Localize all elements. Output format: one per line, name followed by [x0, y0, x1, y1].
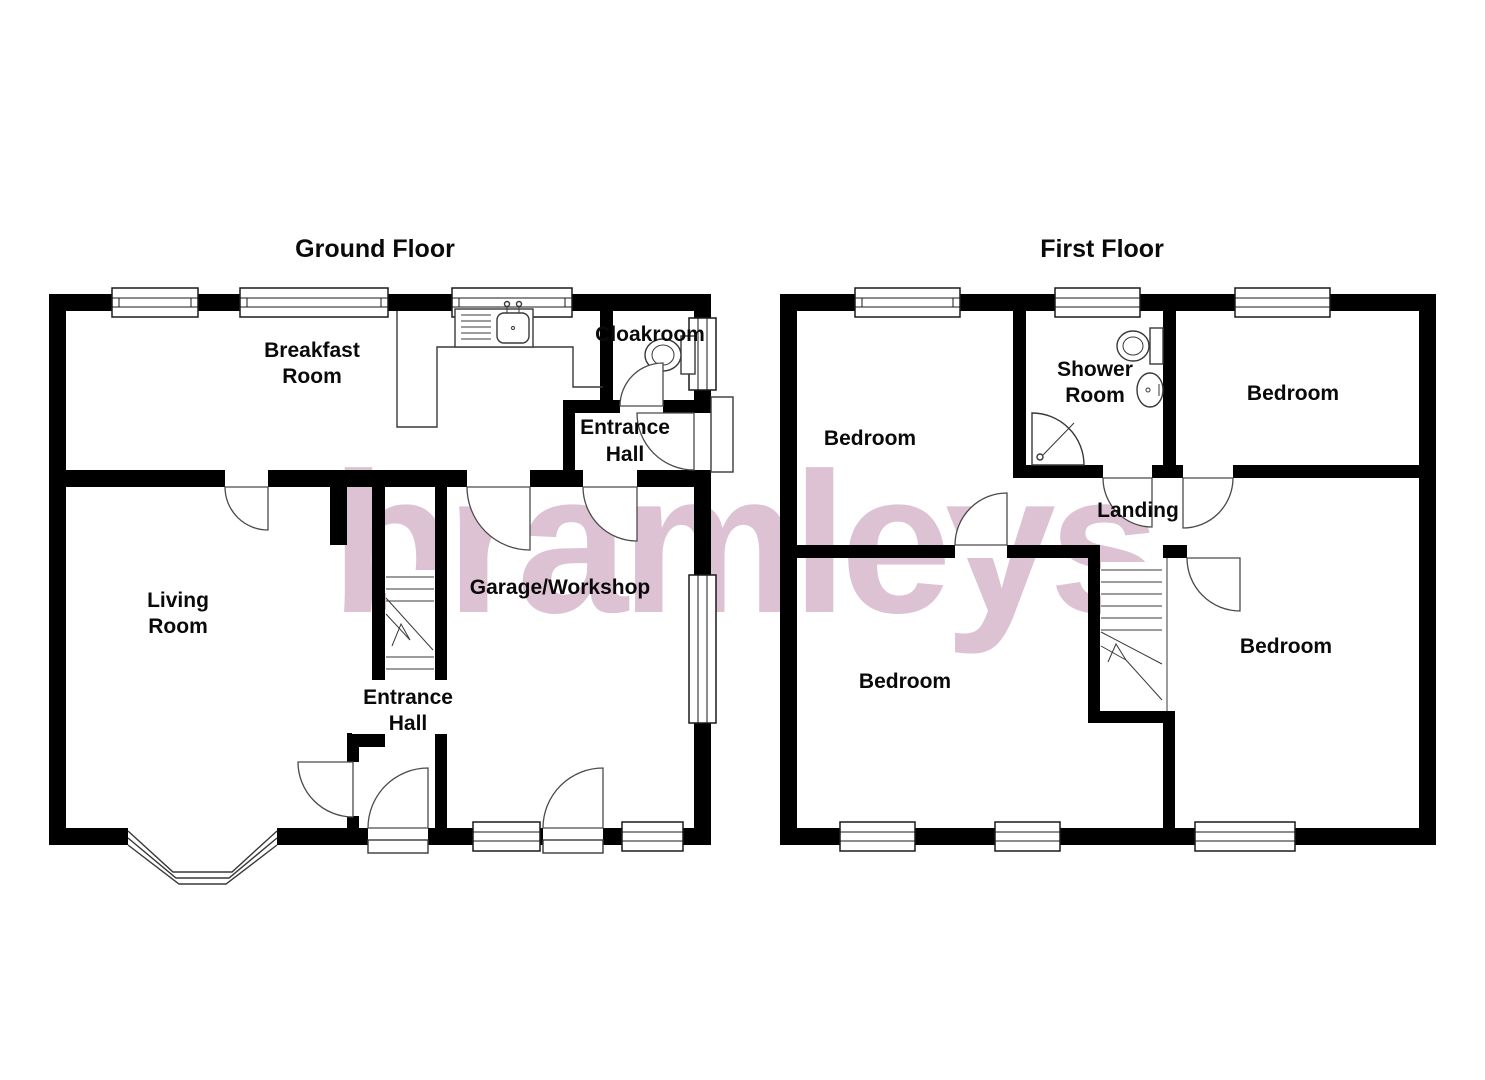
label-entrance-hall-lower-line2: Hall	[389, 712, 428, 735]
front-door-leaf	[711, 397, 733, 472]
label-garage-workshop: Garage/Workshop	[470, 576, 651, 599]
label-entrance-hall-lower-line1: Entrance	[363, 686, 453, 709]
back-door-leaf	[368, 840, 428, 853]
label-shower-room-line1: Shower	[1057, 358, 1133, 381]
label-living-room-line1: Living	[147, 589, 209, 612]
label-living-room-line2: Room	[148, 615, 208, 638]
label-entrance-hall-upper-line1: Entrance	[580, 416, 670, 439]
label-bedroom-bottom-right: Bedroom	[1240, 635, 1332, 658]
label-cloakroom: Cloakroom	[595, 323, 705, 346]
label-bedroom-top-right: Bedroom	[1247, 382, 1339, 405]
label-bedroom-bottom-left: Bedroom	[859, 670, 951, 693]
kitchen-sink	[455, 302, 533, 348]
window-bedroom-br	[1195, 822, 1295, 851]
window-breakfast-2	[240, 288, 388, 317]
label-bedroom-top-left: Bedroom	[824, 427, 916, 450]
window-garage-side	[689, 575, 716, 723]
window-shower-room	[1055, 288, 1140, 317]
stairs-ground-floor	[386, 570, 435, 682]
first-floor-title: First Floor	[1040, 235, 1164, 263]
window-garage-front-1	[473, 822, 540, 851]
window-breakfast-1	[112, 288, 198, 317]
window-bedroom-tl	[855, 288, 960, 317]
label-breakfast-room-line1: Breakfast	[264, 339, 360, 362]
window-bedroom-bl-1	[840, 822, 915, 851]
label-landing: Landing	[1097, 499, 1179, 522]
floorplan-drawing: bramleys	[0, 0, 1485, 1080]
garage-door-leaf	[543, 840, 603, 853]
basin-shower-room	[1137, 373, 1163, 407]
window-garage-front-2	[622, 822, 683, 851]
ground-floor-title: Ground Floor	[295, 235, 455, 263]
label-shower-room-line2: Room	[1065, 384, 1125, 407]
window-bedroom-bl-2	[995, 822, 1060, 851]
label-entrance-hall-upper-line2: Hall	[606, 443, 645, 466]
floorplan-page: bramleys	[0, 0, 1485, 1080]
label-breakfast-room-line2: Room	[282, 365, 342, 388]
window-bedroom-tr	[1235, 288, 1330, 317]
